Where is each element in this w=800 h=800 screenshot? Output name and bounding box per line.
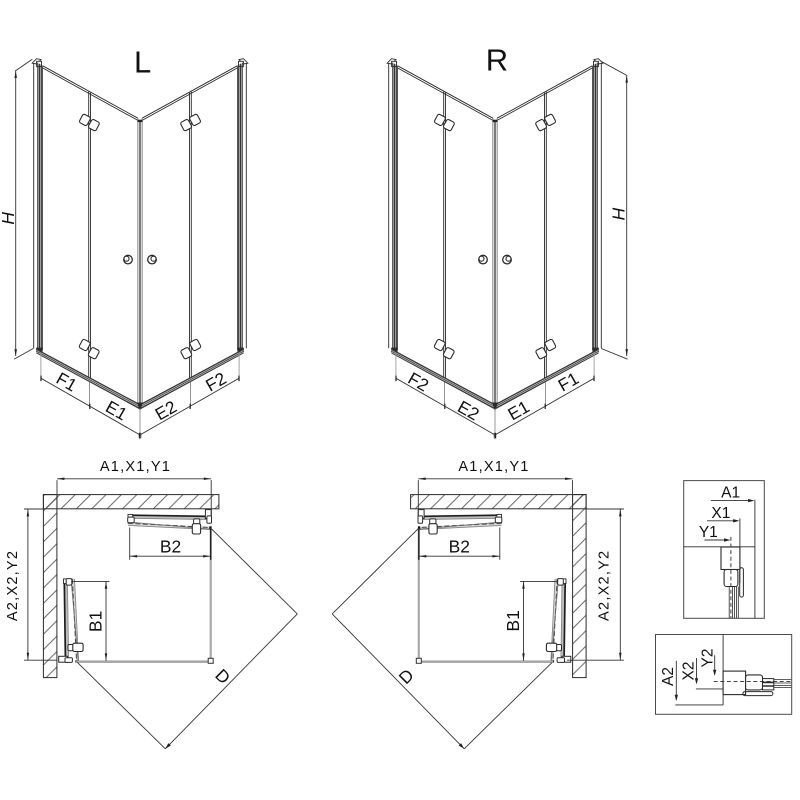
svg-text:X2: X2 bbox=[681, 662, 698, 681]
svg-text:A2: A2 bbox=[660, 667, 677, 686]
svg-text:A2,X2,Y2: A2,X2,Y2 bbox=[5, 550, 21, 621]
svg-text:A1,X1,Y1: A1,X1,Y1 bbox=[458, 459, 529, 475]
svg-text:X1: X1 bbox=[711, 505, 730, 522]
svg-text:A1: A1 bbox=[721, 485, 740, 502]
svg-text:B2: B2 bbox=[160, 536, 181, 556]
svg-text:H: H bbox=[0, 212, 18, 225]
svg-text:D: D bbox=[211, 665, 234, 688]
svg-text:Y1: Y1 bbox=[699, 524, 718, 541]
svg-text:D: D bbox=[395, 665, 418, 688]
svg-text:B1: B1 bbox=[503, 610, 523, 631]
svg-text:A1,X1,Y1: A1,X1,Y1 bbox=[100, 459, 171, 475]
svg-text:L: L bbox=[134, 44, 151, 79]
svg-text:B2: B2 bbox=[449, 536, 470, 556]
svg-text:B1: B1 bbox=[86, 611, 106, 632]
svg-text:E2: E2 bbox=[454, 396, 482, 424]
svg-text:R: R bbox=[486, 42, 508, 77]
svg-text:Y2: Y2 bbox=[699, 649, 716, 668]
svg-text:H: H bbox=[608, 207, 628, 220]
svg-text:A2,X2,Y2: A2,X2,Y2 bbox=[597, 550, 613, 621]
